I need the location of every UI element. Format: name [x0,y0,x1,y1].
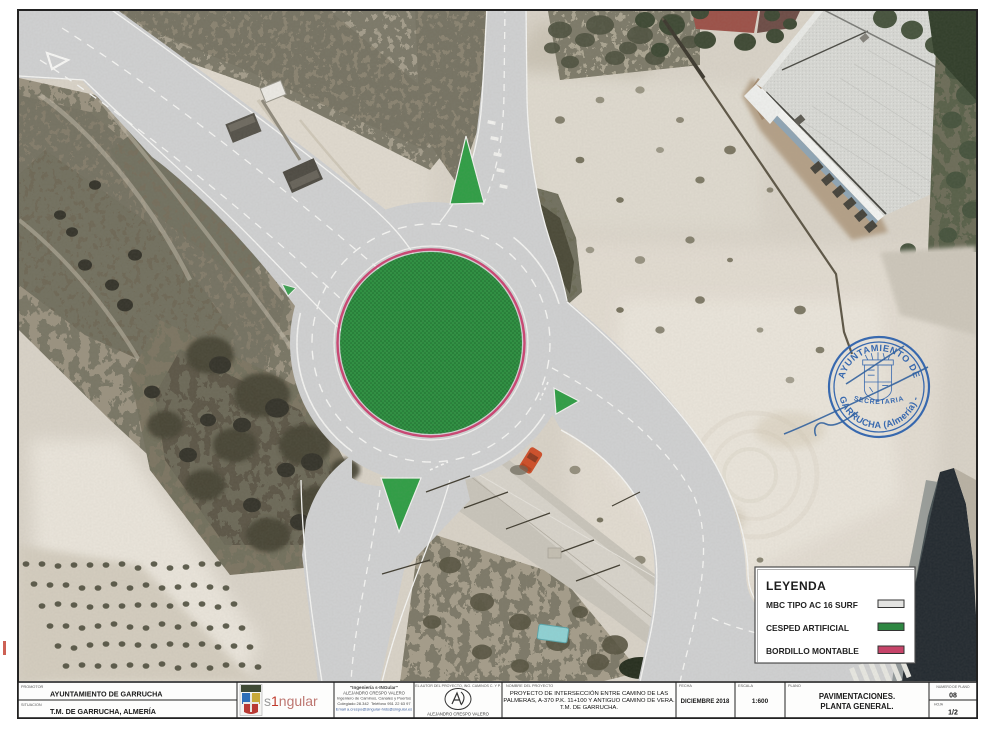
svg-text:1:600: 1:600 [752,698,769,705]
svg-text:"Ingeniería s·INGular": "Ingeniería s·INGular" [350,685,398,690]
svg-text:s1ngular: s1ngular [264,693,318,709]
svg-text:NOMBRE DEL PROYECTO: NOMBRE DEL PROYECTO [506,684,553,688]
svg-text:LEYENDA: LEYENDA [766,579,826,593]
svg-text:ESCALA: ESCALA [738,684,753,688]
svg-text:Email a.crespo@singular-hids@s: Email a.crespo@singular-hids@singular.es [336,707,412,712]
svg-text:PLANO: PLANO [788,684,801,688]
svg-text:08: 08 [949,693,957,700]
svg-text:BORDILLO MONTABLE: BORDILLO MONTABLE [766,646,859,656]
svg-text:ALEJANDRO CRESPO VALERO: ALEJANDRO CRESPO VALERO [427,712,490,717]
svg-text:T.M. DE GARRUCHA.: T.M. DE GARRUCHA. [560,705,618,711]
svg-text:HOJA: HOJA [934,703,944,707]
svg-text:Colegiado 28.342 Teléfono 951: Colegiado 28.342 Teléfono 951 22 63 97 [337,701,411,706]
svg-text:PROYECTO DE INTERSECCIÓN ENTRE: PROYECTO DE INTERSECCIÓN ENTRE CAMINO DE… [510,690,668,697]
svg-text:1/2: 1/2 [948,710,958,717]
svg-text:DICIEMBRE 2018: DICIEMBRE 2018 [681,699,730,705]
svg-text:CESPED ARTIFICIAL: CESPED ARTIFICIAL [766,623,849,633]
svg-text:Ingeniero de Caminos, Canales: Ingeniero de Caminos, Canales y Puertos [337,696,411,701]
svg-text:AYUNTAMIENTO DE GARRUCHA: AYUNTAMIENTO DE GARRUCHA [50,690,162,699]
svg-text:SITUACION: SITUACION [21,703,42,707]
svg-text:T.M. DE GARRUCHA, ALMERÍA: T.M. DE GARRUCHA, ALMERÍA [50,707,156,716]
svg-text:PLANTA GENERAL.: PLANTA GENERAL. [820,702,893,711]
svg-text:EL AUTOR DEL PROYECTO, ING. CA: EL AUTOR DEL PROYECTO, ING. CAMINOS C. Y… [415,684,501,688]
svg-text:NUMERO DE PLANO: NUMERO DE PLANO [936,685,970,689]
svg-text:PALMERAS, A-370 P.K. 11+100 Y: PALMERAS, A-370 P.K. 11+100 Y ANTIGUO CA… [503,698,675,704]
svg-text:PROMOTOR: PROMOTOR [21,685,44,689]
svg-text:FECHA: FECHA [679,684,692,688]
svg-text:MBC TIPO AC 16 SURF: MBC TIPO AC 16 SURF [766,600,858,610]
svg-text:PAVIMENTACIONES.: PAVIMENTACIONES. [819,692,895,701]
